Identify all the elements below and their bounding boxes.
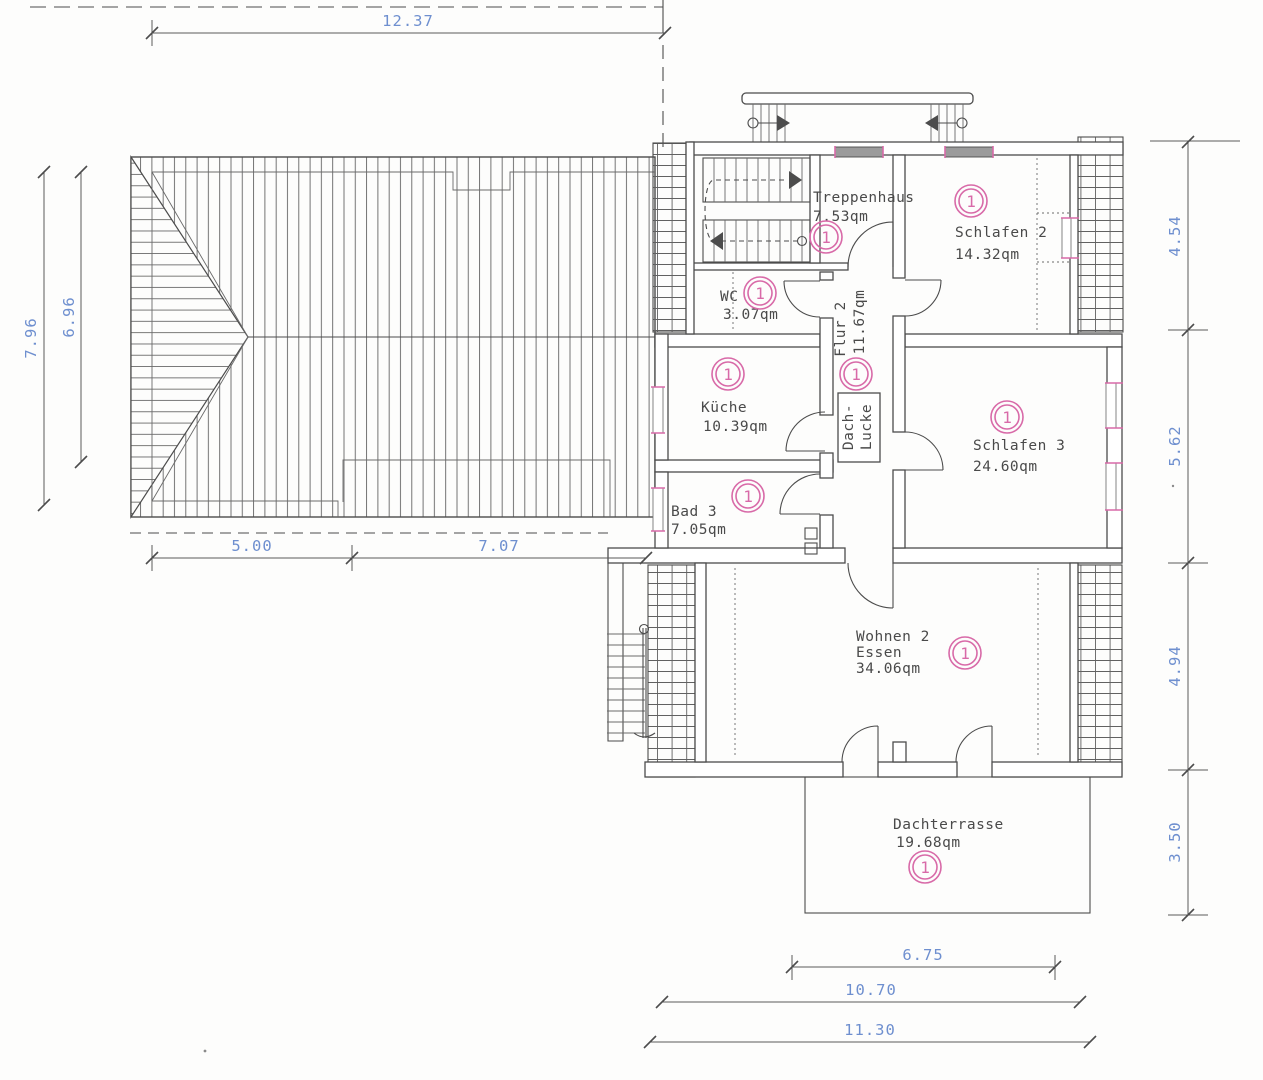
ladder-rail <box>643 628 646 738</box>
room-label-wohnen-name2: Essen <box>856 645 902 661</box>
roof-strips <box>648 137 1123 777</box>
dim-lower-left-2: 7.07 <box>478 537 519 555</box>
strip-bottom-left <box>648 565 695 777</box>
dim-left-outer: 7.96 <box>22 317 40 358</box>
door-schlafen2 <box>905 280 941 316</box>
room-marker-kueche: 1 <box>712 358 744 390</box>
svg-text:1: 1 <box>755 284 765 303</box>
strip-top-right <box>1078 137 1123 332</box>
dim-right-1: 4.54 <box>1166 215 1184 256</box>
door-wohnen <box>848 563 893 608</box>
wall-block-bottom-right <box>893 548 1122 563</box>
svg-text:1: 1 <box>1002 408 1012 427</box>
window-top-2 <box>945 147 993 157</box>
room-marker-schlafen2: 1 <box>955 185 987 217</box>
window-schlafen3-1 <box>1106 383 1116 428</box>
strip-top-left <box>653 143 686 332</box>
room-marker-flur2: 1 <box>840 358 872 390</box>
wall-top-exterior <box>690 142 1123 155</box>
door-treppenhaus <box>848 222 893 267</box>
chimney-1 <box>805 528 817 539</box>
ladder-top-icon <box>640 625 649 634</box>
window-bad <box>653 488 663 531</box>
dim-right-2: 5.62 <box>1166 425 1184 466</box>
room-label-treppenhaus-area: 7.53qm <box>813 209 868 225</box>
room-label-dachterrasse-name: Dachterrasse <box>893 817 1004 833</box>
door-terrace-2 <box>956 726 992 762</box>
room-label-wohnen-area: 34.06qm <box>856 661 921 677</box>
door-bad <box>780 474 820 514</box>
wall-pier <box>893 742 906 762</box>
window-top-1 <box>835 147 883 157</box>
room-marker-wc: 1 <box>744 277 776 309</box>
dim-left-inner: 6.96 <box>60 296 78 337</box>
wall-mid-left <box>655 334 820 347</box>
room-label-treppenhaus-name: Treppenhaus <box>813 190 915 206</box>
dim-lower-left-1: 5.00 <box>231 537 272 555</box>
wall-corridor-left <box>820 318 833 415</box>
svg-text:1: 1 <box>821 228 831 247</box>
wall-u-piece <box>608 563 623 741</box>
svg-text:1: 1 <box>920 858 930 877</box>
room-label-flur2-area: 11.67qm <box>852 290 868 355</box>
stair-arrow-up-icon <box>789 171 802 189</box>
wall-stairs-bottom <box>690 263 848 270</box>
door-kueche <box>786 412 825 451</box>
room-label-flur2-name: Flur 2 <box>833 301 849 356</box>
door-terrace-1 <box>842 726 878 762</box>
room-label-wc-name: WC <box>720 289 738 305</box>
room-label-kueche-area: 10.39qm <box>703 419 768 435</box>
wall-schlafen-divider <box>905 334 1122 347</box>
door-schlafen3 <box>905 432 943 470</box>
dim-bottom-2: 10.70 <box>845 981 897 999</box>
wall-schlafen3-right <box>1107 347 1122 548</box>
room-marker-wohnen: 1 <box>949 637 981 669</box>
room-marker-dachterrasse: 1 <box>909 851 941 883</box>
floor-plan-sheet: 12.37 7.96 6.96 5.00 7.07 4.54 5.62 4.94… <box>0 0 1263 1080</box>
wall-stairs-left <box>686 142 694 334</box>
window-schlafen3-2 <box>1106 463 1116 510</box>
top-balcony <box>742 93 973 142</box>
dim-bottom-3: 11.30 <box>844 1021 896 1039</box>
svg-text:1: 1 <box>743 487 753 506</box>
room-label-kueche-name: Küche <box>701 400 747 416</box>
roof-hatch-label-2: Lucke <box>859 404 875 450</box>
wall-wohnen-bottom-3 <box>992 762 1122 777</box>
room-label-wohnen-name: Wohnen 2 <box>856 629 930 645</box>
roof-plan <box>131 157 655 517</box>
arrow-left-icon <box>925 115 938 131</box>
dim-right-3: 4.94 <box>1166 645 1184 686</box>
svg-text:1: 1 <box>723 365 733 384</box>
balcony-drain-right-icon <box>957 118 967 128</box>
dim-bottom-1: 6.75 <box>902 946 943 964</box>
wall-wohnen-left <box>695 563 706 762</box>
room-label-schlafen3-area: 24.60qm <box>973 459 1038 475</box>
window-kueche <box>653 387 663 433</box>
room-marker-bad3: 1 <box>732 480 764 512</box>
floor-plan-drawing: 12.37 7.96 6.96 5.00 7.07 4.54 5.62 4.94… <box>0 0 1263 1080</box>
ladder-rungs <box>607 634 645 733</box>
dim-top: 12.37 <box>382 12 434 30</box>
doors <box>780 222 992 762</box>
svg-text:1: 1 <box>966 192 976 211</box>
wall-wohnen-right <box>1070 563 1078 762</box>
door-wc <box>784 281 820 317</box>
svg-text:1: 1 <box>851 365 861 384</box>
roof-hatch-label-1: Dach- <box>841 404 857 450</box>
dim-right-4: 3.50 <box>1166 821 1184 862</box>
wall-wohnen-bottom-2 <box>878 762 957 777</box>
room-label-dachterrasse-area: 19.68qm <box>896 835 961 851</box>
svg-text:1: 1 <box>960 644 970 663</box>
wall-kueche-bad <box>655 460 833 472</box>
room-label-bad3-area: 7.05qm <box>671 522 726 538</box>
arrow-right-icon <box>777 115 790 131</box>
room-marker-schlafen3: 1 <box>991 401 1023 433</box>
room-label-schlafen3-name: Schlafen 3 <box>973 438 1065 454</box>
room-labels: Treppenhaus 7.53qm Schlafen 2 14.32qm WC… <box>671 190 1065 851</box>
room-label-schlafen2-name: Schlafen 2 <box>955 225 1047 241</box>
room-label-schlafen2-area: 14.32qm <box>955 247 1020 263</box>
window-schlafen2 <box>1062 218 1071 258</box>
wall-wohnen-bottom-1 <box>645 762 843 777</box>
stair-arrow-icon <box>710 232 723 250</box>
room-label-bad3-name: Bad 3 <box>671 504 717 520</box>
strip-bottom-right <box>1078 565 1122 775</box>
stair-walk-line <box>705 180 798 241</box>
room-marker-treppenhaus: 1 <box>810 221 842 253</box>
wall-corridor-right <box>893 155 905 278</box>
room-label-wc-area: 3.07qm <box>723 307 778 323</box>
